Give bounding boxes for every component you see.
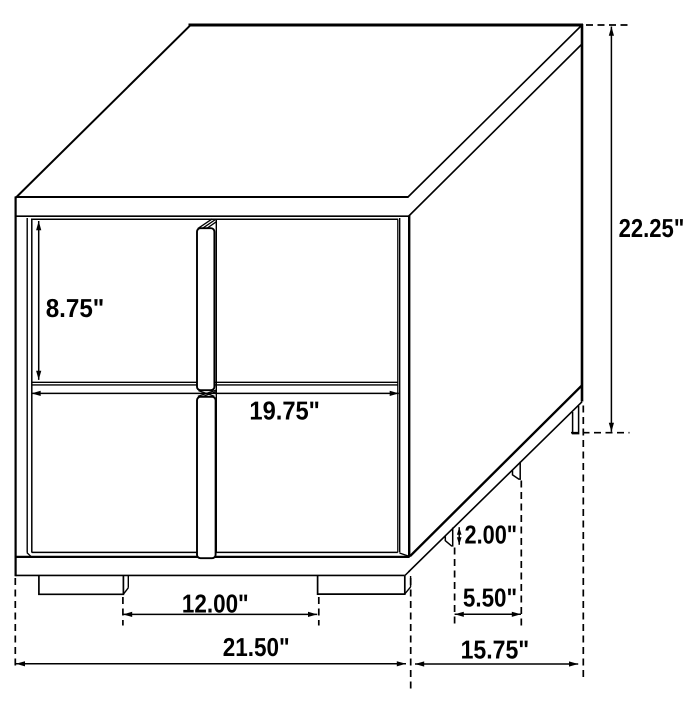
svg-text:22.25": 22.25" bbox=[619, 213, 685, 243]
svg-text:19.75": 19.75" bbox=[249, 396, 320, 426]
svg-text:8.75": 8.75" bbox=[46, 293, 105, 323]
svg-text:5.50": 5.50" bbox=[463, 582, 517, 612]
svg-text:12.00": 12.00" bbox=[182, 589, 249, 619]
svg-text:21.50": 21.50" bbox=[223, 632, 290, 662]
svg-text:15.75": 15.75" bbox=[461, 635, 530, 665]
svg-text:2.00": 2.00" bbox=[465, 519, 518, 549]
